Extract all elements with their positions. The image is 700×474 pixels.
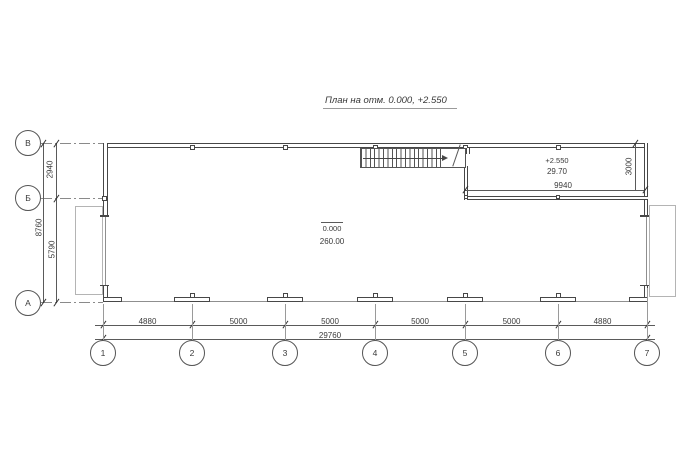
left-wall-upper (103, 143, 108, 216)
axis-bubble-col-7: 7 (634, 340, 660, 366)
pilaster-axis-3 (267, 297, 303, 302)
pilaster-axis-6 (540, 297, 576, 302)
column-bottom-axis-4 (373, 293, 378, 298)
axis-line-col-6 (558, 304, 559, 340)
axis-bubble-row-v: В (15, 130, 41, 156)
dim-bottom-segment-6: 4880 (558, 317, 647, 326)
axis-line-col-3 (285, 304, 286, 340)
axis-bubble-col-4: 4 (362, 340, 388, 366)
dim-bottom-total: 29760 (285, 331, 375, 340)
column-left-axis-b (102, 196, 107, 201)
column-top-axis-6 (556, 145, 561, 150)
axis-line-row-a (41, 302, 103, 303)
dim-line-left-segments (56, 143, 57, 303)
axis-bubble-row-b: Б (15, 185, 41, 211)
mezzanine-wall-stub (466, 148, 470, 154)
axis-bubble-col-1: 1 (90, 340, 116, 366)
pilaster-axis-5 (447, 297, 483, 302)
stair-direction-line (363, 158, 443, 159)
dim-bottom-segment-1: 4880 (103, 317, 192, 326)
column-bottom-axis-2 (190, 293, 195, 298)
dim-left-segment-2: 5790 (48, 225, 57, 275)
pilaster-axis-2 (174, 297, 210, 302)
hall-level-value: 0.000 (321, 222, 344, 233)
dim-left-segment-1: 2940 (46, 145, 55, 195)
hall-level-mark: 0.000 (311, 224, 353, 233)
pilaster-corner-left (103, 297, 122, 302)
axis-bubble-col-3: 3 (272, 340, 298, 366)
pilaster-axis-4 (357, 297, 393, 302)
axis-line-row-b (41, 198, 103, 199)
left-opening-jamb-top (100, 215, 109, 217)
axis-line-col-2 (192, 304, 193, 340)
dim-line-mezzanine-depth (635, 143, 636, 190)
axis-bubble-row-a: А (15, 290, 41, 316)
column-bottom-axis-3 (283, 293, 288, 298)
dim-bottom-segment-2: 5000 (192, 317, 285, 326)
floor-plan-drawing: План на отм. 0.000, +2.550 (0, 0, 700, 474)
axis-bubble-col-5: 5 (452, 340, 478, 366)
left-exterior-platform (75, 206, 103, 295)
stair-direction-arrow-icon (442, 155, 448, 161)
axis-bubble-col-2: 2 (179, 340, 205, 366)
right-opening-jamb-top (640, 215, 649, 217)
axis-line-col-7 (647, 288, 648, 340)
column-mezzanine-axis-6 (556, 195, 560, 199)
hall-area-value: 260.00 (311, 237, 353, 246)
column-top-axis-3 (283, 145, 288, 150)
dim-bottom-segment-4: 5000 (375, 317, 465, 326)
axis-line-col-4 (375, 304, 376, 340)
column-mezzanine-corner (464, 195, 468, 199)
right-wall-opening (646, 216, 647, 285)
left-wall-opening (105, 216, 106, 285)
column-bottom-axis-5 (463, 293, 468, 298)
axis-bubble-col-6: 6 (545, 340, 571, 366)
dim-left-total: 8760 (35, 203, 44, 253)
column-bottom-axis-6 (556, 293, 561, 298)
dim-bottom-segment-3: 5000 (285, 317, 375, 326)
dim-line-mezzanine-width (465, 190, 645, 191)
right-exterior-platform (649, 205, 677, 297)
mezzanine-area-value: 29.70 (527, 167, 587, 176)
mezzanine-level-value: +2.550 (527, 156, 587, 165)
pilaster-corner-right (629, 297, 648, 302)
drawing-title: План на отм. 0.000, +2.550 (323, 95, 457, 109)
axis-line-col-1 (103, 304, 104, 340)
right-wall-upper (644, 143, 649, 216)
column-top-axis-2 (190, 145, 195, 150)
axis-line-col-5 (465, 304, 466, 340)
dim-bottom-segment-5: 5000 (465, 317, 558, 326)
dim-mezzanine-depth: 3000 (625, 142, 634, 192)
dim-mezzanine-width: 9940 (533, 181, 593, 190)
